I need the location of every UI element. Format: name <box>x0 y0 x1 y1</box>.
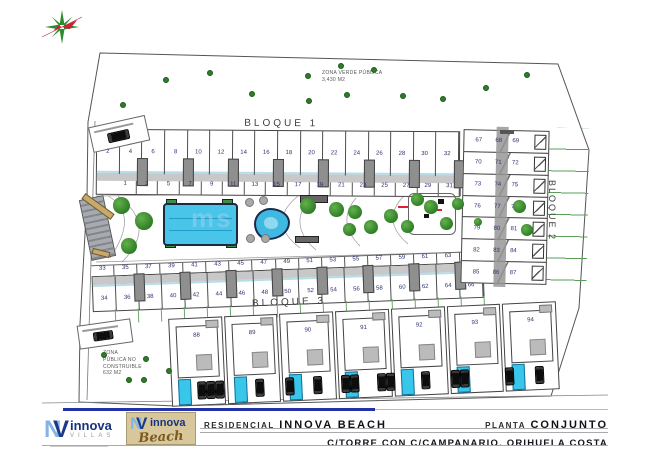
unit-number: 49 <box>283 259 290 265</box>
play-equipment-icon <box>424 214 429 218</box>
unit-number: 94 <box>527 317 534 323</box>
unit-number: 87 <box>510 270 517 276</box>
unit-number: 32 <box>444 151 451 157</box>
unit-number: 58 <box>376 286 383 292</box>
unit-number: 75 <box>511 182 518 188</box>
unit-number: 71 <box>495 160 502 166</box>
unit-number: 93 <box>471 320 478 326</box>
unit-number: 18 <box>285 150 292 156</box>
stairwell <box>408 263 420 291</box>
tree-dot-icon <box>166 368 172 374</box>
car-icon <box>93 330 114 342</box>
play-equipment-icon <box>438 199 444 204</box>
tree-dot-icon <box>524 72 530 78</box>
garden-cell <box>139 308 163 323</box>
unit-number: 57 <box>375 256 382 262</box>
unit-number: 59 <box>398 255 405 261</box>
logo-beach-name: innova <box>150 418 185 429</box>
car-icon <box>255 379 265 397</box>
unit-number: 36 <box>124 295 131 301</box>
tree-dot-icon <box>163 77 169 83</box>
unit-number: 15 <box>273 182 280 188</box>
tree-icon <box>424 200 438 214</box>
stairwell <box>133 273 145 301</box>
unit-number: 74 <box>494 182 501 188</box>
tree-dot-icon <box>306 98 312 104</box>
unit-number: 52 <box>307 288 314 294</box>
tree-dot-icon <box>344 92 350 98</box>
tree-icon <box>401 220 414 233</box>
unit-cell: 25 <box>374 183 396 196</box>
unit-number: 33 <box>99 266 106 272</box>
unit-number: 21 <box>338 182 345 188</box>
tree-icon <box>135 212 153 230</box>
bush-icon <box>261 234 270 243</box>
unit-number: 16 <box>263 150 270 156</box>
unit-cell: 34 <box>93 276 117 311</box>
bloque1: BLOQUE 1 2468101214161820222426283032 13… <box>96 117 461 198</box>
unit-number: 14 <box>240 150 247 156</box>
unit-number: 23 <box>360 183 367 189</box>
unit-number: 54 <box>330 287 337 293</box>
unit-number: 83 <box>493 247 500 253</box>
compass-rose-icon <box>42 10 82 44</box>
address: C/TORRE CON C/CAMPANARIO. ORIHUELA COSTA <box>327 438 608 449</box>
unit-number: 56 <box>353 286 360 292</box>
tree-icon <box>384 209 398 223</box>
unit-number: 35 <box>122 265 129 271</box>
title-accent-bar <box>63 408 375 411</box>
bloque2: 6768697071727374757677787980818283848586… <box>460 130 549 285</box>
unit-cell: 9 <box>201 181 223 194</box>
unit-number: 69 <box>512 139 519 145</box>
utility-bar <box>500 130 514 134</box>
pergola <box>295 236 319 243</box>
unit-number: 30 <box>421 151 428 157</box>
unit-cell: 13 <box>244 182 266 195</box>
unit-cell: 15 <box>266 182 288 195</box>
unit-number: 25 <box>381 183 388 189</box>
unit-cell: 21 <box>331 182 353 195</box>
balcony-icon <box>532 244 544 259</box>
tree-dot-icon <box>371 67 377 73</box>
unit-number: 80 <box>493 226 500 232</box>
unit-number: 2 <box>106 149 109 155</box>
stairwell <box>225 270 237 298</box>
car-icon <box>386 373 396 391</box>
unit-number: 12 <box>218 150 225 156</box>
unit-number: 92 <box>416 322 423 328</box>
unit-number: 24 <box>353 151 360 157</box>
villas-row: 88899091929394 <box>168 301 560 409</box>
unit-number: 61 <box>422 254 429 260</box>
unit-cell: 1 <box>115 181 137 194</box>
unit-number: 46 <box>238 291 245 297</box>
unit-number: 50 <box>284 289 291 295</box>
unit-number: 41 <box>191 262 198 268</box>
title-bottom-line <box>42 445 608 446</box>
car-icon <box>535 366 545 384</box>
bloque2-label: BLOQUE 2 <box>547 180 557 260</box>
unit-number: 29 <box>424 183 431 189</box>
tree-icon <box>348 205 362 219</box>
car-icon <box>215 380 225 398</box>
kids-pool <box>254 208 290 240</box>
unit-number: 37 <box>145 264 152 270</box>
tree-icon <box>121 238 137 254</box>
unit-number: 73 <box>474 181 481 187</box>
unit-number: 43 <box>214 261 221 267</box>
title-accent-ext <box>375 409 608 410</box>
unit-number: 64 <box>445 283 452 289</box>
tree-icon <box>440 217 453 230</box>
bush-icon <box>246 234 255 243</box>
unit-number: 68 <box>495 138 502 144</box>
tree-dot-icon <box>207 70 213 76</box>
unit-number: 11 <box>230 182 236 188</box>
unit-cell: 11 <box>223 182 245 195</box>
tree-dot-icon <box>143 356 149 362</box>
unit-number: 28 <box>399 151 406 157</box>
unit-number: 22 <box>331 150 338 156</box>
tree-icon <box>364 220 378 234</box>
nv-monogram-icon: N V <box>130 414 150 432</box>
tree-icon <box>521 224 533 236</box>
unit-number: 76 <box>474 203 481 209</box>
bush-icon <box>259 196 268 205</box>
stairwell <box>317 267 329 295</box>
unit-number: 91 <box>360 325 367 331</box>
unit-number: 89 <box>249 330 256 336</box>
unit-number: 40 <box>170 293 177 299</box>
logo-beach-script: Beach <box>130 428 193 446</box>
bloque1-outline: 2468101214161820222426283032 13579111315… <box>96 129 460 198</box>
unit-number: 9 <box>210 182 213 188</box>
car-icon <box>505 367 515 385</box>
unit-number: 7 <box>188 181 191 187</box>
balcony-icon <box>532 222 544 237</box>
unit-number: 31 <box>446 183 453 189</box>
unit-number: 51 <box>306 258 313 264</box>
tree-icon <box>452 198 464 210</box>
tree-icon <box>329 202 344 217</box>
logo-url-line <box>50 446 108 447</box>
unit-number: 86 <box>493 269 500 275</box>
unit-number: 44 <box>216 291 223 297</box>
tree-icon <box>343 223 356 236</box>
tree-dot-icon <box>338 63 344 69</box>
tree-dot-icon <box>101 352 107 358</box>
car-icon <box>107 129 131 144</box>
stairwell <box>271 268 283 296</box>
nv-monogram-icon: N V <box>44 416 70 442</box>
tree-dot-icon <box>249 91 255 97</box>
innova-beach-logo: N V innova Beach <box>126 412 196 445</box>
unit-cell: 17 <box>288 182 310 195</box>
car-icon <box>285 377 295 395</box>
car-icon <box>421 371 431 389</box>
unit-number: 19 <box>316 182 323 188</box>
stairwell <box>409 160 420 188</box>
tree-dot-icon <box>126 377 132 383</box>
bloque1-label: BLOQUE 1 <box>244 118 318 130</box>
unit-number: 62 <box>422 284 429 290</box>
tree-dot-icon <box>400 93 406 99</box>
stairwell <box>179 272 191 300</box>
unit-number: 81 <box>510 226 517 232</box>
unit-number: 47 <box>260 260 267 266</box>
tree-icon <box>474 218 482 226</box>
tree-dot-icon <box>440 96 446 102</box>
unit-number: 45 <box>237 261 244 267</box>
street-sign-bottom <box>77 318 134 349</box>
balcony-icon <box>534 156 546 171</box>
unit-number: 79 <box>473 225 480 231</box>
balcony-icon <box>534 135 546 150</box>
villas-cars <box>168 301 560 409</box>
balcony-icon <box>531 266 543 281</box>
tree-dot-icon <box>483 85 489 91</box>
unit-number: 88 <box>193 332 200 338</box>
logo-villas-name: innova <box>70 419 114 432</box>
unit-number: 38 <box>147 294 154 300</box>
unit-number: 8 <box>174 149 177 155</box>
unit-number: 20 <box>308 150 315 156</box>
unit-number: 3 <box>145 181 148 187</box>
red-annotation <box>398 206 408 208</box>
innova-villas-logo: N V innova VILLAS <box>44 412 122 445</box>
address-row: C/TORRE CON C/CAMPANARIO. ORIHUELA COSTA <box>200 433 608 450</box>
balcony-icon <box>533 200 545 215</box>
balcony-icon <box>533 178 545 193</box>
watermark: ms <box>191 203 233 234</box>
logo-villas-sub: VILLAS <box>70 433 114 439</box>
tree-icon <box>513 200 526 213</box>
unit-number: 39 <box>168 263 175 269</box>
unit-number: 17 <box>295 182 302 188</box>
unit-number: 34 <box>101 296 108 302</box>
unit-number: 84 <box>510 248 517 254</box>
bush-icon <box>245 198 254 207</box>
unit-number: 4 <box>129 149 132 155</box>
tree-icon <box>300 198 316 214</box>
unit-number: 13 <box>252 182 259 188</box>
zona-publica-label: ZONA PÚBLICA NO CONSTRUIBLE 632 M2 <box>103 350 142 377</box>
tree-icon <box>113 197 130 214</box>
unit-number: 90 <box>304 327 311 333</box>
car-icon <box>350 374 360 392</box>
car-icon <box>460 369 470 387</box>
unit-number: 6 <box>151 149 154 155</box>
unit-number: 48 <box>261 290 268 296</box>
unit-number: 77 <box>494 204 501 210</box>
stairwell <box>363 265 375 293</box>
tree-dot-icon <box>120 102 126 108</box>
unit-number: 53 <box>329 257 336 263</box>
unit-number: 60 <box>399 285 406 291</box>
unit-number: 82 <box>473 247 480 253</box>
car-icon <box>313 376 323 394</box>
tree-dot-icon <box>141 377 147 383</box>
unit-number: 5 <box>167 181 170 187</box>
unit-number: 85 <box>473 269 480 275</box>
unit-number: 63 <box>445 253 452 259</box>
unit-cell: 5 <box>158 181 180 194</box>
unit-number: 70 <box>475 160 482 166</box>
unit-number: 42 <box>193 292 200 298</box>
unit-number: 26 <box>376 151 383 157</box>
tree-icon <box>411 193 424 206</box>
unit-number: 55 <box>352 256 359 262</box>
unit-number: 10 <box>195 149 202 155</box>
unit-number: 67 <box>475 138 482 144</box>
tree-dot-icon <box>305 73 311 79</box>
unit-number: 72 <box>512 160 519 166</box>
unit-number: 1 <box>123 181 126 187</box>
unit-number: 27 <box>403 183 410 189</box>
site-plan-sheet: ZONA VERDE PÚBLICA 3,430 M2 BLOQUE 1 246… <box>0 0 650 450</box>
